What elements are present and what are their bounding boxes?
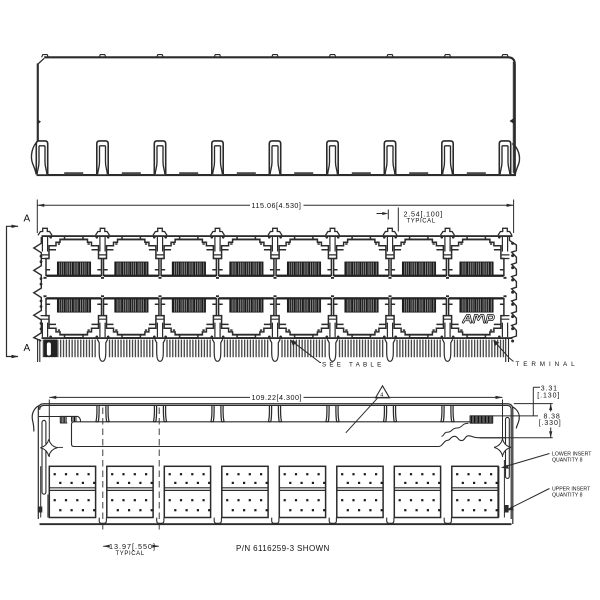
svg-text:TYPICAL: TYPICAL [407, 219, 436, 225]
svg-text:QUANTITY 8: QUANTITY 8 [552, 458, 583, 464]
svg-text:SEE TABLE: SEE TABLE [322, 362, 385, 369]
svg-text:QUANTITY 8: QUANTITY 8 [552, 493, 583, 499]
svg-text:A: A [24, 343, 31, 354]
svg-text:4: 4 [380, 393, 383, 399]
svg-text:UPPER INSERT: UPPER INSERT [552, 486, 591, 492]
svg-text:13.97[.550]: 13.97[.550] [109, 542, 156, 551]
svg-text:115.06[4.530]: 115.06[4.530] [252, 201, 302, 210]
svg-text:[.330]: [.330] [539, 420, 562, 427]
svg-text:LOWER INSERT: LOWER INSERT [552, 451, 592, 457]
svg-text:P/N 6116259-3 SHOWN: P/N 6116259-3 SHOWN [236, 544, 330, 553]
svg-text:TERMINAL: TERMINAL [516, 361, 579, 368]
svg-text:A: A [24, 214, 31, 225]
svg-text:2.54[.100]: 2.54[.100] [404, 209, 443, 218]
svg-text:[.130]: [.130] [537, 392, 560, 399]
svg-text:TYPICAL: TYPICAL [116, 551, 145, 557]
svg-text:109.22[4.300]: 109.22[4.300] [252, 393, 302, 402]
